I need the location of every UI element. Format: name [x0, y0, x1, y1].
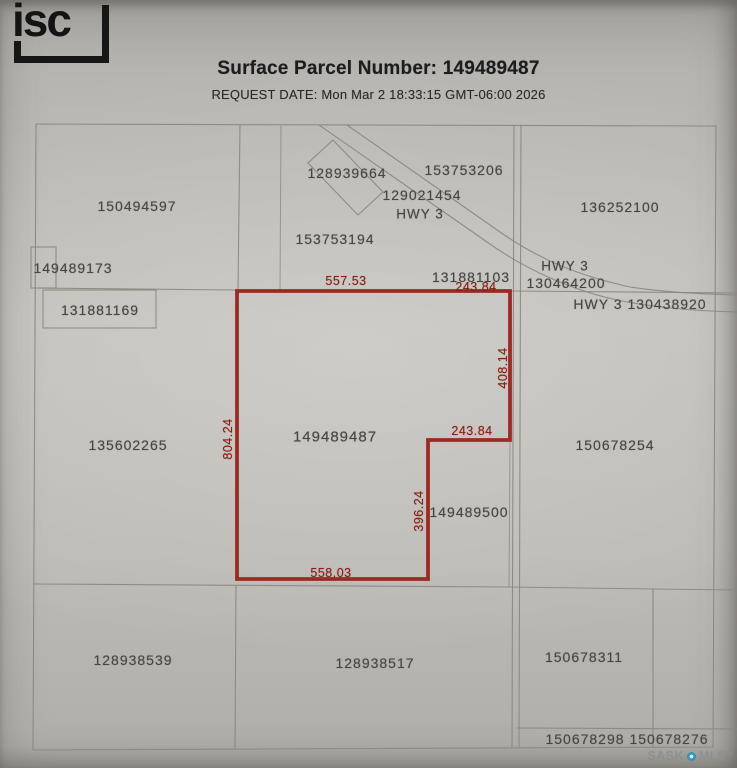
highway-label-hwy3-top: HWY 3 — [396, 207, 444, 222]
parcel-label-150678311: 150678311 — [545, 649, 623, 665]
parcel-label-128938517: 128938517 — [335, 655, 414, 671]
parcel-label-131881169: 131881169 — [61, 302, 139, 318]
parcel-label-150678276: 150678276 — [629, 731, 708, 747]
parcel-label-130464200: 130464200 — [526, 275, 605, 291]
dimension-bottom: 558.03 — [310, 566, 351, 580]
road-allowance-line — [519, 125, 521, 747]
boundary-line — [235, 586, 236, 749]
boundary-line — [238, 125, 240, 289]
parcel-label-129021454: 129021454 — [382, 187, 461, 203]
watermark-mls-text: MLS — [699, 749, 727, 763]
parcel-label-128939664: 128939664 — [307, 165, 386, 181]
parcel-label-136252100: 136252100 — [580, 199, 659, 215]
dimension-top-right: 243.84 — [455, 280, 496, 294]
parcel-label-128938539: 128938539 — [93, 652, 172, 668]
parcel-label-153753194: 153753194 — [295, 231, 374, 247]
dimension-right: 408.14 — [496, 347, 510, 388]
parcel-label-135602265: 135602265 — [88, 437, 167, 453]
sask-mls-watermark: SASK MLS ® — [648, 749, 735, 763]
parcel-label-150678254: 150678254 — [575, 437, 654, 453]
boundary-line — [280, 126, 281, 290]
boundary-line — [517, 728, 737, 729]
parcel-label-153753206: 153753206 — [424, 162, 503, 178]
dimension-top: 557.53 — [325, 274, 366, 288]
highway-parcel-label-group: HWY 3 130438920 — [573, 296, 706, 312]
registered-mark: ® — [728, 750, 734, 757]
parcel-label-149489500: 149489500 — [429, 504, 508, 520]
highway-label-hwy3-lower: HWY 3 — [573, 296, 622, 312]
section-line-lower — [33, 584, 737, 590]
dimension-left: 804.24 — [221, 418, 235, 459]
dimension-notch-width: 243.84 — [451, 424, 492, 438]
parcel-label-150678298: 150678298 — [545, 731, 624, 747]
dimension-notch-height: 396.24 — [412, 490, 426, 531]
parcel-label-130438920: 130438920 — [628, 296, 707, 312]
parcel-label-149489173: 149489173 — [33, 260, 112, 276]
highway-label-hwy3-right: HWY 3 — [541, 259, 589, 274]
watermark-sask-text: SASK — [648, 749, 684, 763]
parcel-label-150494597: 150494597 — [97, 198, 176, 214]
road-allowance-line — [512, 125, 514, 747]
mls-dot-icon — [687, 752, 696, 761]
scanned-parcel-map-page: isc Surface Parcel Number: 149489487 REQ… — [0, 0, 737, 768]
boundary-line — [509, 441, 510, 587]
parcel-label-149489487-subject: 149489487 — [293, 429, 377, 446]
